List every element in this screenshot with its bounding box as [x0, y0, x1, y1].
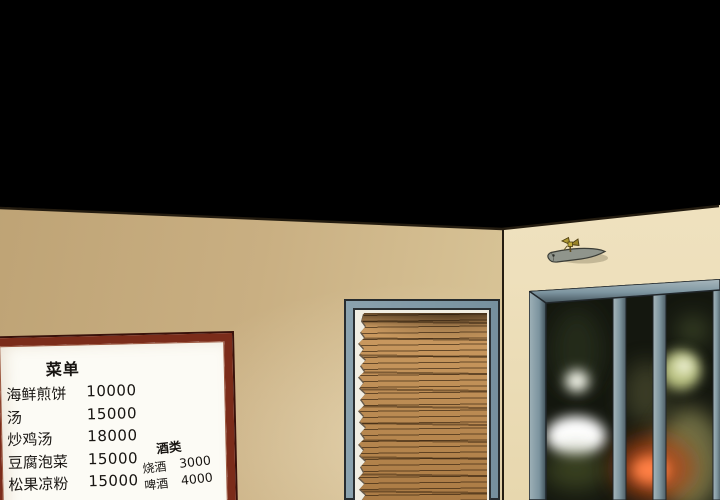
menu-item-price: 15000 [87, 404, 138, 423]
alcohol-item-name: 烧酒 [142, 459, 167, 476]
menu-item-row: 海鲜煎饼 10000 [6, 380, 196, 405]
menu-board: 菜单 海鲜煎饼 10000 汤 15000 炒鸡汤 18000 豆腐泡菜 150… [0, 333, 236, 500]
menu-item-name: 海鲜煎饼 [6, 383, 76, 406]
window-mullion-edge [713, 280, 720, 500]
comic-panel: 菜单 海鲜煎饼 10000 汤 15000 炒鸡汤 18000 豆腐泡菜 150… [0, 0, 720, 500]
bamboo-blind [357, 313, 487, 500]
alcohol-item-name: 啤酒 [144, 476, 169, 493]
dried-fish-charm [543, 236, 611, 272]
menu-item-price: 10000 [86, 381, 137, 400]
fish-eye [552, 254, 554, 256]
window-mullion [653, 281, 666, 500]
light-glow-white-small [565, 370, 589, 392]
window [529, 278, 720, 500]
door-frame-inner [353, 308, 491, 500]
window-mullion [613, 282, 626, 500]
window-frame-left [529, 290, 546, 500]
menu-item-name: 炒鸡汤 [7, 428, 77, 451]
menu-item-row: 汤 15000 [7, 403, 197, 428]
menu-title: 菜单 [45, 355, 80, 380]
alcohol-item-price: 4000 [180, 470, 213, 487]
doorway [344, 299, 500, 500]
menu-item-name: 松果凉粉 [8, 473, 78, 496]
alcohol-section: 酒类 烧酒 3000 啤酒 4000 [128, 432, 215, 494]
menu-item-name: 豆腐泡菜 [8, 451, 78, 474]
alcohol-item-price: 3000 [178, 453, 211, 470]
menu-item-name: 汤 [7, 406, 77, 429]
